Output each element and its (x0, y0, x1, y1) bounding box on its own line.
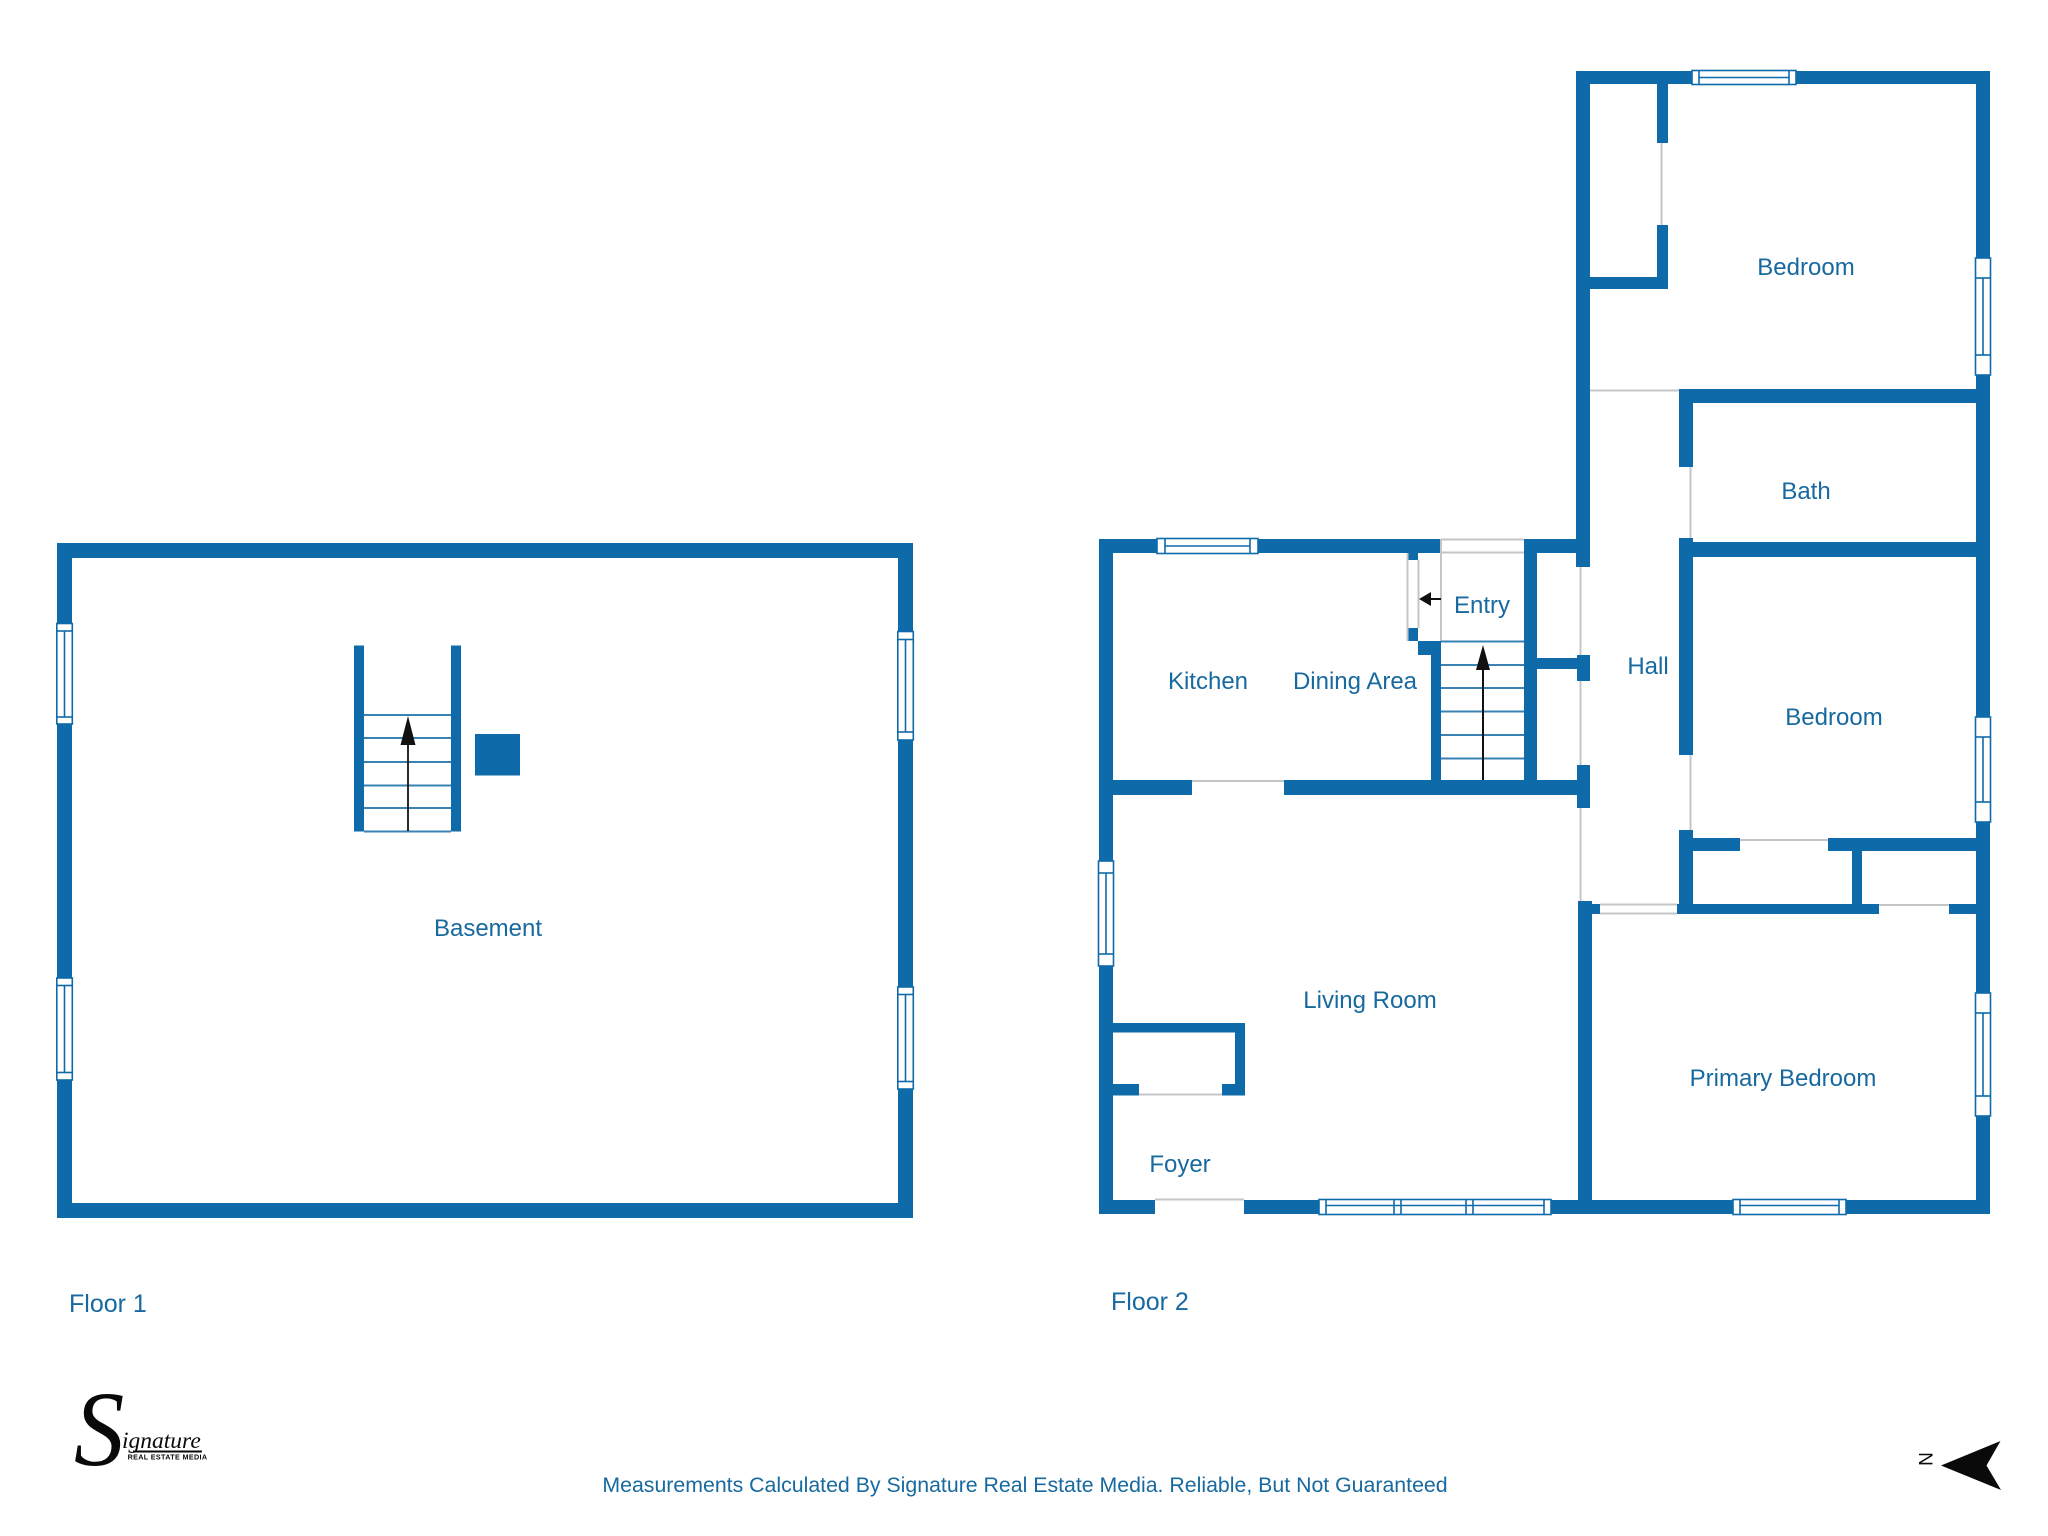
svg-text:ignature: ignature (122, 1428, 201, 1454)
svg-text:Floor 2: Floor 2 (1111, 1288, 1189, 1316)
svg-text:Bath: Bath (1781, 478, 1830, 505)
svg-text:Hall: Hall (1627, 653, 1668, 680)
svg-text:Kitchen: Kitchen (1168, 668, 1248, 695)
svg-text:Living Room: Living Room (1303, 987, 1436, 1014)
svg-text:Measurements Calculated By Sig: Measurements Calculated By Signature Rea… (602, 1473, 1447, 1497)
svg-text:Bedroom: Bedroom (1757, 254, 1854, 281)
svg-text:Dining Area: Dining Area (1293, 668, 1418, 695)
svg-text:Basement: Basement (434, 915, 542, 942)
svg-text:N: N (1917, 1452, 1938, 1466)
svg-text:Bedroom: Bedroom (1785, 704, 1882, 731)
svg-text:Floor 1: Floor 1 (69, 1290, 147, 1318)
svg-text:Entry: Entry (1454, 592, 1510, 619)
svg-text:Foyer: Foyer (1149, 1151, 1210, 1178)
svg-text:S: S (74, 1370, 124, 1489)
svg-text:REAL ESTATE MEDIA: REAL ESTATE MEDIA (128, 1453, 208, 1462)
svg-text:Primary Bedroom: Primary Bedroom (1690, 1065, 1877, 1092)
